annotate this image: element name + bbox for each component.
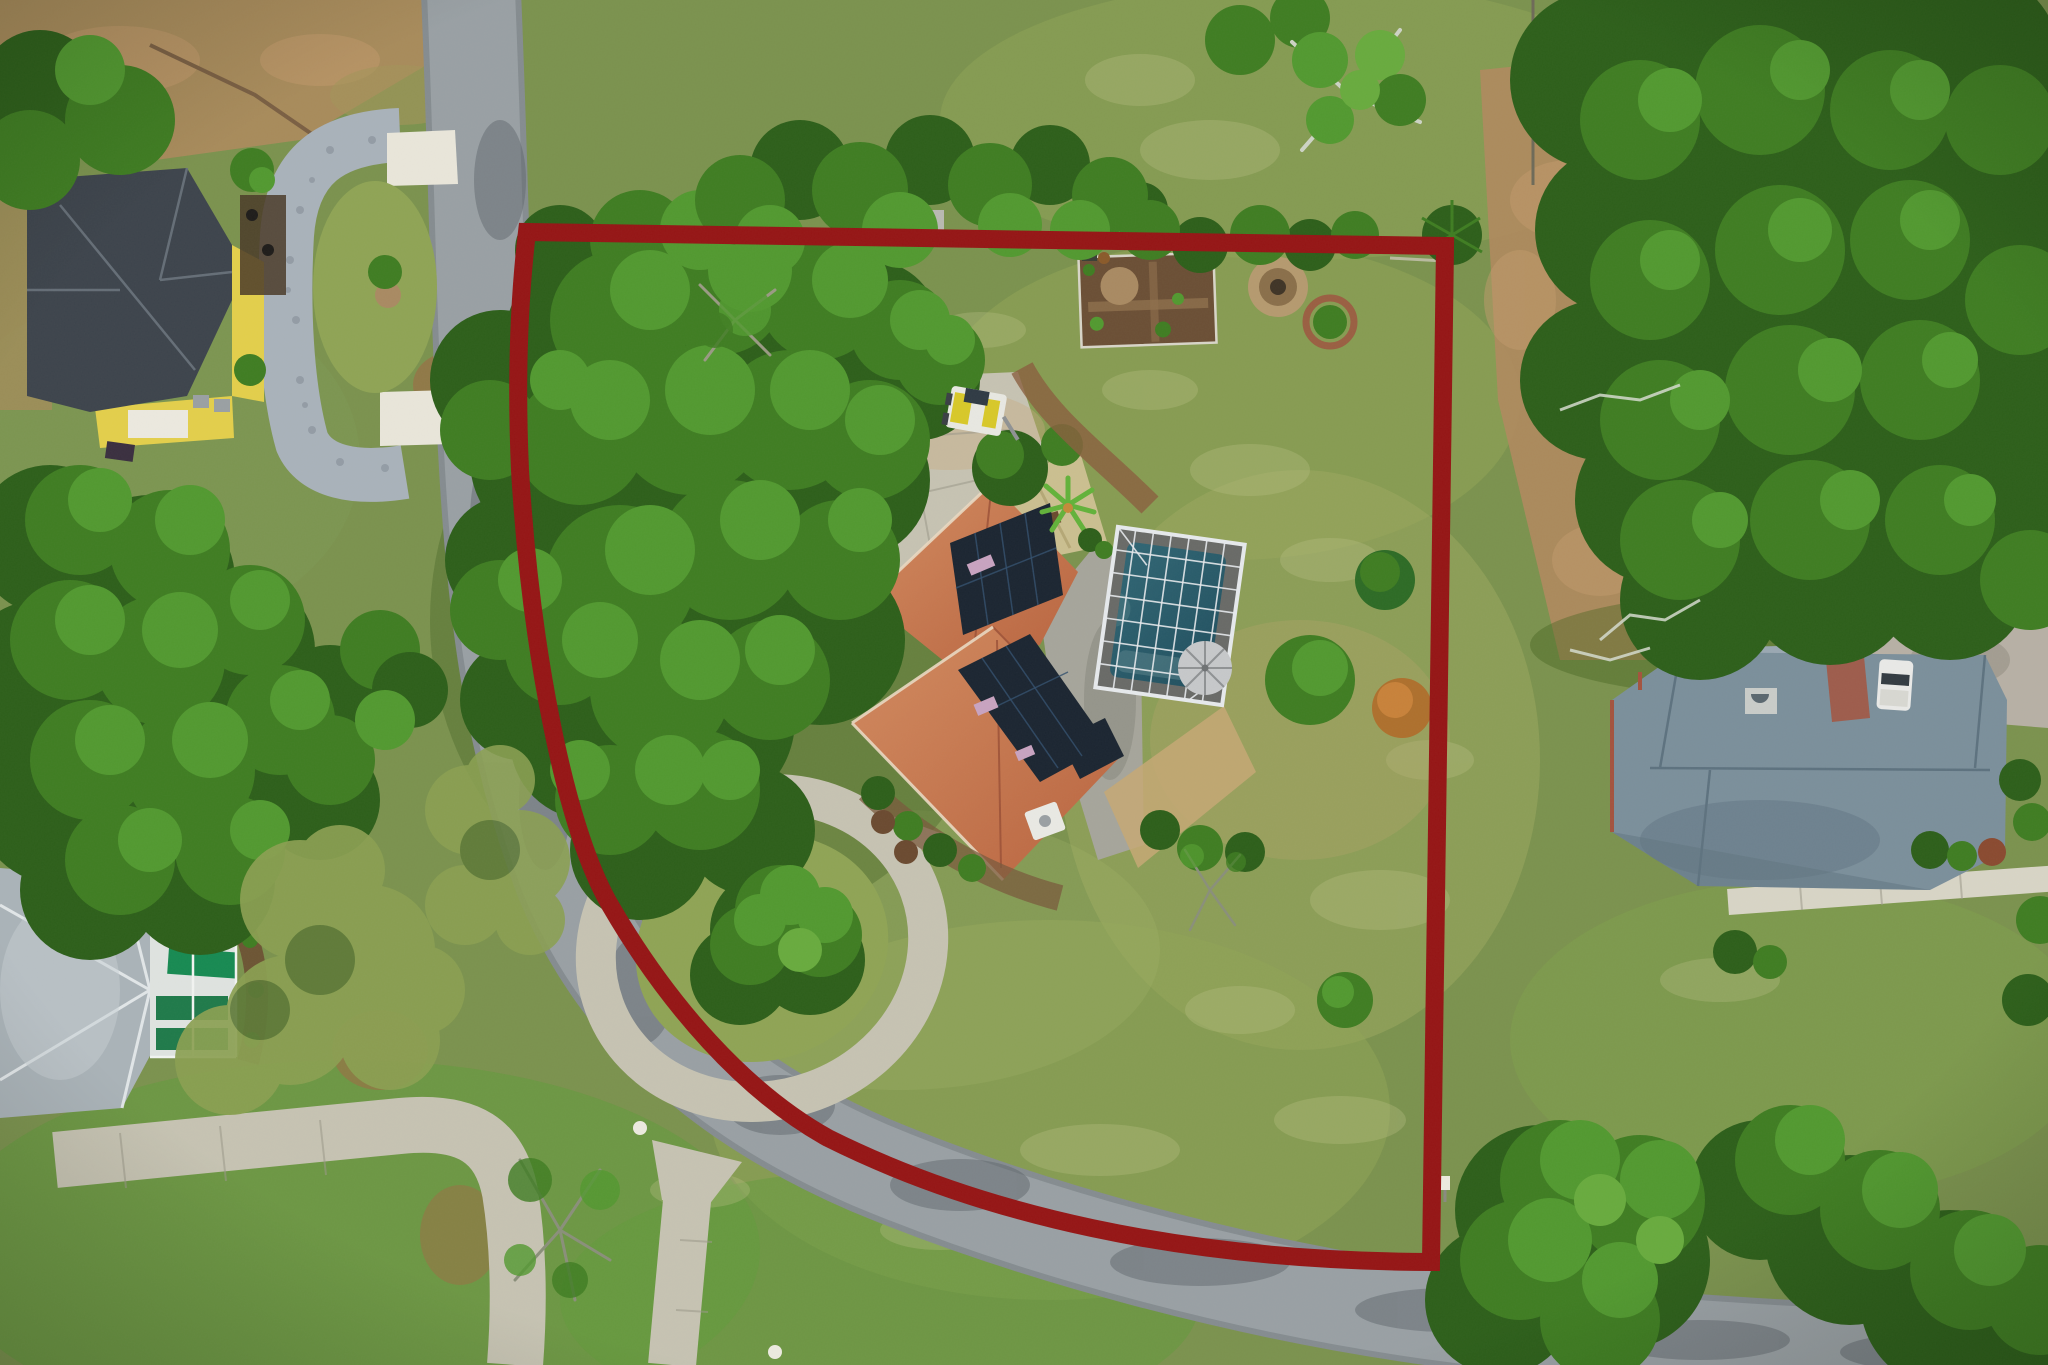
aerial-photo-stage <box>0 0 2048 1365</box>
vignette <box>0 0 2048 1365</box>
aerial-photo <box>0 0 2048 1365</box>
